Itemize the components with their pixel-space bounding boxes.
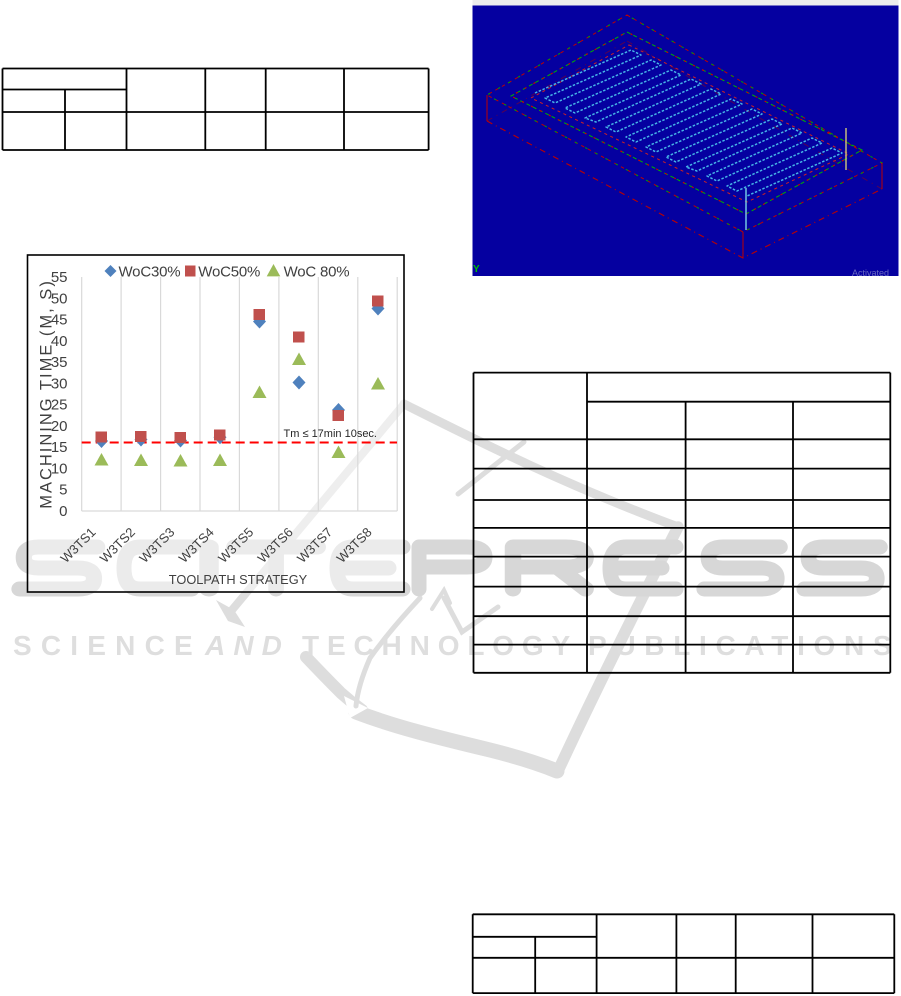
- svg-text:0: 0: [59, 503, 67, 520]
- svg-text:Activated: Activated: [852, 268, 889, 278]
- svg-text:TOOLPATH STRATEGY: TOOLPATH STRATEGY: [169, 572, 308, 587]
- svg-text:5: 5: [59, 482, 67, 499]
- svg-text:SCIENCE: SCIENCE: [13, 630, 202, 661]
- svg-text:Y: Y: [473, 264, 480, 275]
- svg-text:WoC30%: WoC30%: [119, 264, 181, 281]
- svg-text:Tm ≤ 17min 10sec.: Tm ≤ 17min 10sec.: [284, 428, 377, 440]
- svg-text:MACHINING TIME (M, S): MACHINING TIME (M, S): [38, 279, 56, 509]
- svg-text:AND: AND: [204, 630, 290, 661]
- svg-text:WoC 80%: WoC 80%: [284, 264, 350, 281]
- svg-text:WoC50%: WoC50%: [198, 264, 260, 281]
